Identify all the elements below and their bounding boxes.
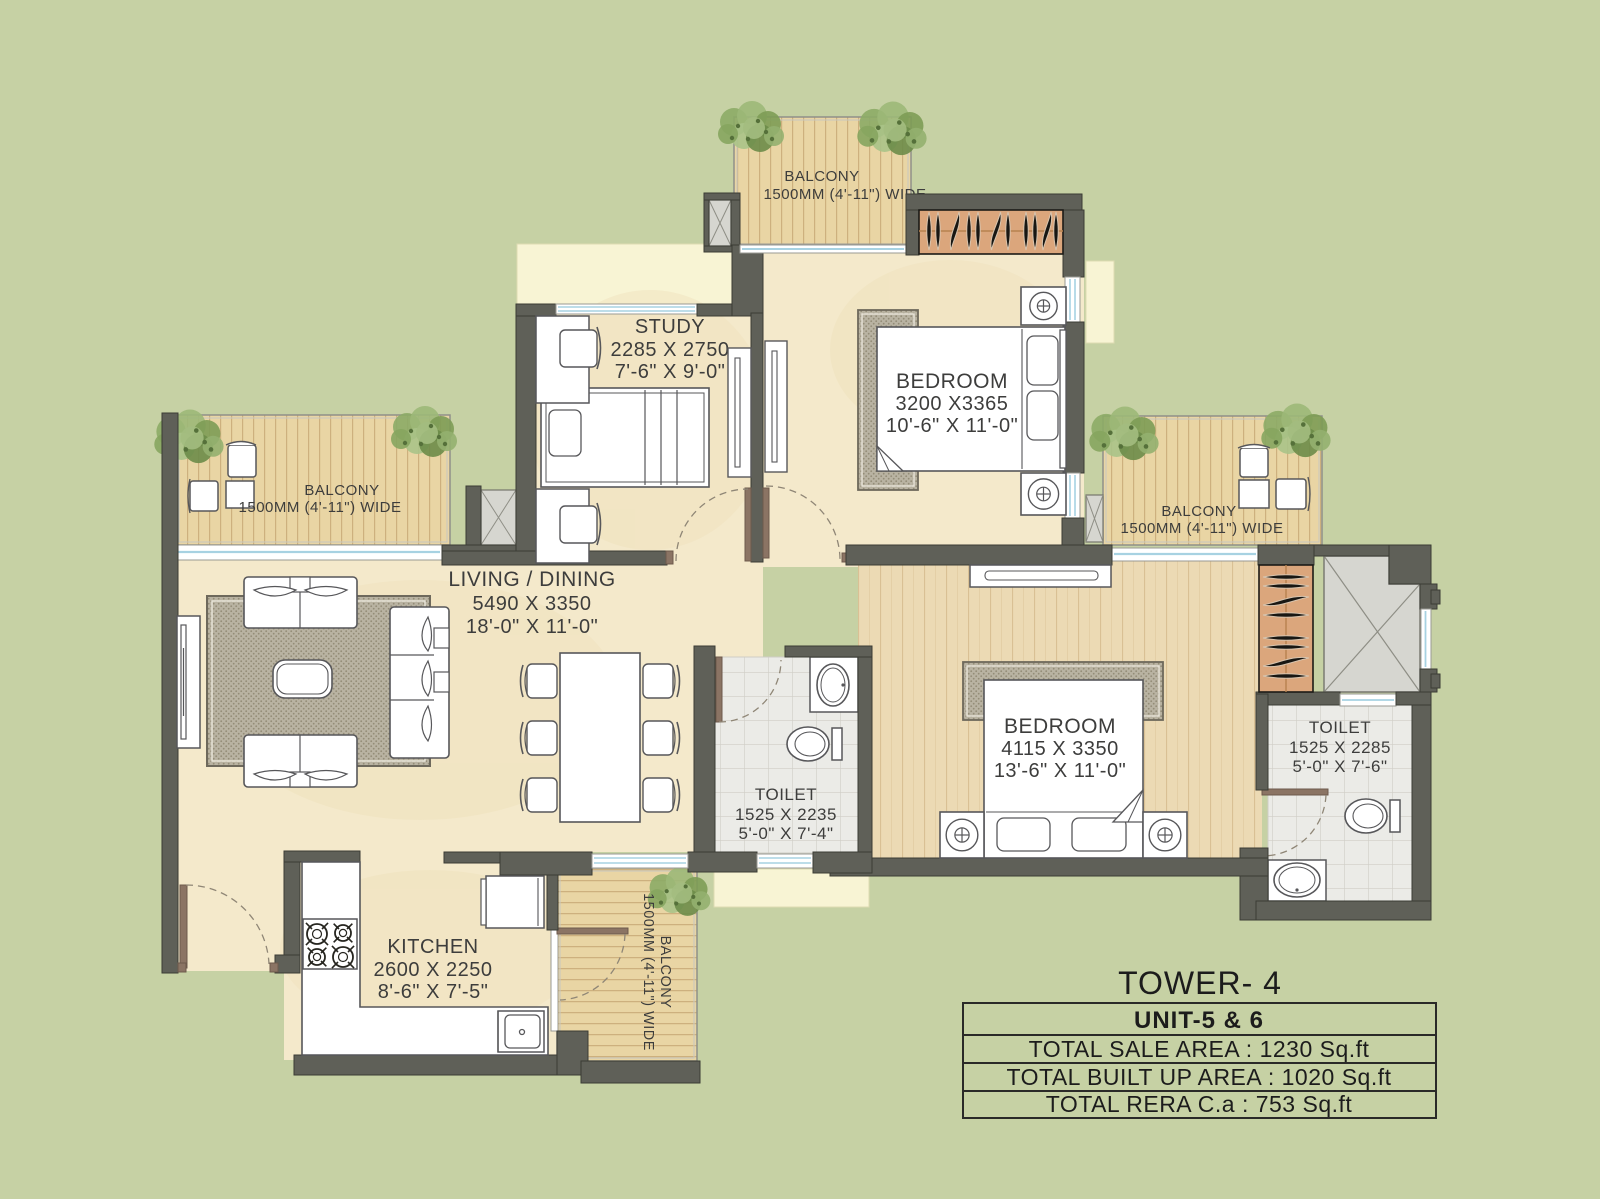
- svg-text:BALCONY: BALCONY: [1161, 503, 1236, 520]
- svg-text:BALCONY: BALCONY: [784, 168, 859, 185]
- svg-text:5'-0" X 7'-4": 5'-0" X 7'-4": [739, 824, 834, 843]
- svg-text:BALCONY: BALCONY: [304, 482, 379, 499]
- svg-text:TOTAL RERA C.a : 753 Sq.ft: TOTAL RERA C.a : 753 Sq.ft: [1046, 1091, 1353, 1117]
- svg-text:1500MM (4'-11") WIDE: 1500MM (4'-11") WIDE: [1121, 520, 1284, 537]
- svg-text:13'-6" X 11'-0": 13'-6" X 11'-0": [994, 760, 1126, 782]
- svg-text:7'-6" X 9'-0": 7'-6" X 9'-0": [615, 361, 726, 383]
- svg-text:10'-6" X 11'-0": 10'-6" X 11'-0": [886, 415, 1018, 437]
- svg-text:2600 X 2250: 2600 X 2250: [374, 959, 493, 981]
- svg-text:BALCONY: BALCONY: [657, 936, 673, 1009]
- svg-text:LIVING / DINING: LIVING / DINING: [448, 568, 615, 591]
- svg-text:8'-6" X 7'-5": 8'-6" X 7'-5": [378, 981, 489, 1003]
- svg-text:1525 X 2285: 1525 X 2285: [1289, 738, 1391, 757]
- svg-text:TOWER- 4: TOWER- 4: [1118, 965, 1282, 1001]
- svg-text:KITCHEN: KITCHEN: [387, 936, 478, 958]
- svg-text:TOILET: TOILET: [755, 785, 817, 804]
- svg-text:1500MM (4'-11") WIDE: 1500MM (4'-11") WIDE: [640, 893, 656, 1051]
- svg-text:TOTAL SALE AREA : 1230 Sq.ft: TOTAL SALE AREA : 1230 Sq.ft: [1029, 1036, 1370, 1062]
- svg-text:3200 X3365: 3200 X3365: [896, 393, 1009, 415]
- svg-text:2285 X 2750: 2285 X 2750: [611, 339, 730, 361]
- svg-text:1500MM (4'-11") WIDE: 1500MM (4'-11") WIDE: [239, 499, 402, 516]
- svg-text:5'-0" X 7'-6": 5'-0" X 7'-6": [1293, 757, 1388, 776]
- svg-text:5490 X 3350: 5490 X 3350: [473, 593, 592, 615]
- svg-text:1500MM (4'-11") WIDE: 1500MM (4'-11") WIDE: [764, 186, 927, 203]
- svg-text:BEDROOM: BEDROOM: [896, 370, 1008, 393]
- svg-text:BEDROOM: BEDROOM: [1004, 715, 1116, 738]
- svg-text:TOILET: TOILET: [1309, 718, 1371, 737]
- svg-text:UNIT-5 & 6: UNIT-5 & 6: [1134, 1007, 1264, 1034]
- svg-text:4115 X 3350: 4115 X 3350: [1001, 738, 1118, 760]
- svg-text:STUDY: STUDY: [635, 316, 705, 338]
- svg-text:18'-0" X 11'-0": 18'-0" X 11'-0": [466, 616, 598, 638]
- svg-text:1525 X 2235: 1525 X 2235: [735, 805, 837, 824]
- svg-text:TOTAL BUILT UP AREA : 1020 Sq: TOTAL BUILT UP AREA : 1020 Sq.ft: [1006, 1064, 1391, 1090]
